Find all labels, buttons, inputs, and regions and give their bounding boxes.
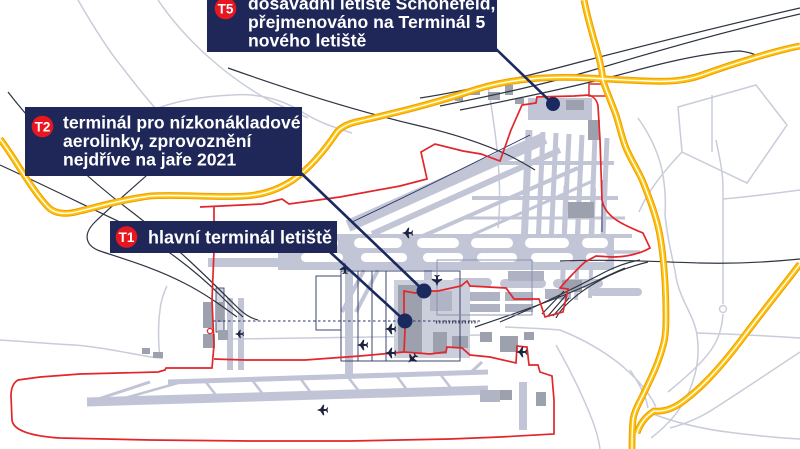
svg-text:hlavní terminál letiště: hlavní terminál letiště [148,228,332,248]
svg-text:nového letiště: nového letiště [248,31,367,51]
svg-text:T2: T2 [35,120,51,135]
svg-text:nejdříve na jaře 2021: nejdříve na jaře 2021 [63,150,236,170]
svg-text:T1: T1 [119,230,135,245]
svg-text:přejmenováno na Terminál 5: přejmenováno na Terminál 5 [248,12,485,32]
svg-text:aerolinky, zprovoznění: aerolinky, zprovoznění [63,131,252,151]
svg-text:T5: T5 [218,2,234,17]
svg-text:terminál pro nízkonákladové: terminál pro nízkonákladové [63,113,301,133]
